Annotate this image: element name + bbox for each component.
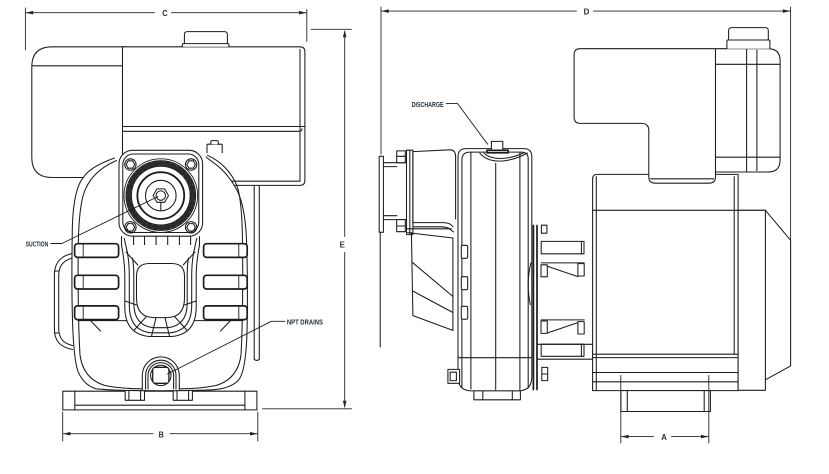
- svg-text:A: A: [661, 432, 667, 442]
- svg-text:C: C: [162, 8, 167, 18]
- svg-text:SUCTION: SUCTION: [26, 240, 49, 249]
- svg-text:E: E: [340, 239, 346, 249]
- svg-text:NPT DRAINS: NPT DRAINS: [287, 317, 323, 326]
- svg-text:D: D: [584, 7, 590, 17]
- svg-text:B: B: [159, 429, 164, 439]
- svg-text:DISCHARGE: DISCHARGE: [412, 100, 444, 109]
